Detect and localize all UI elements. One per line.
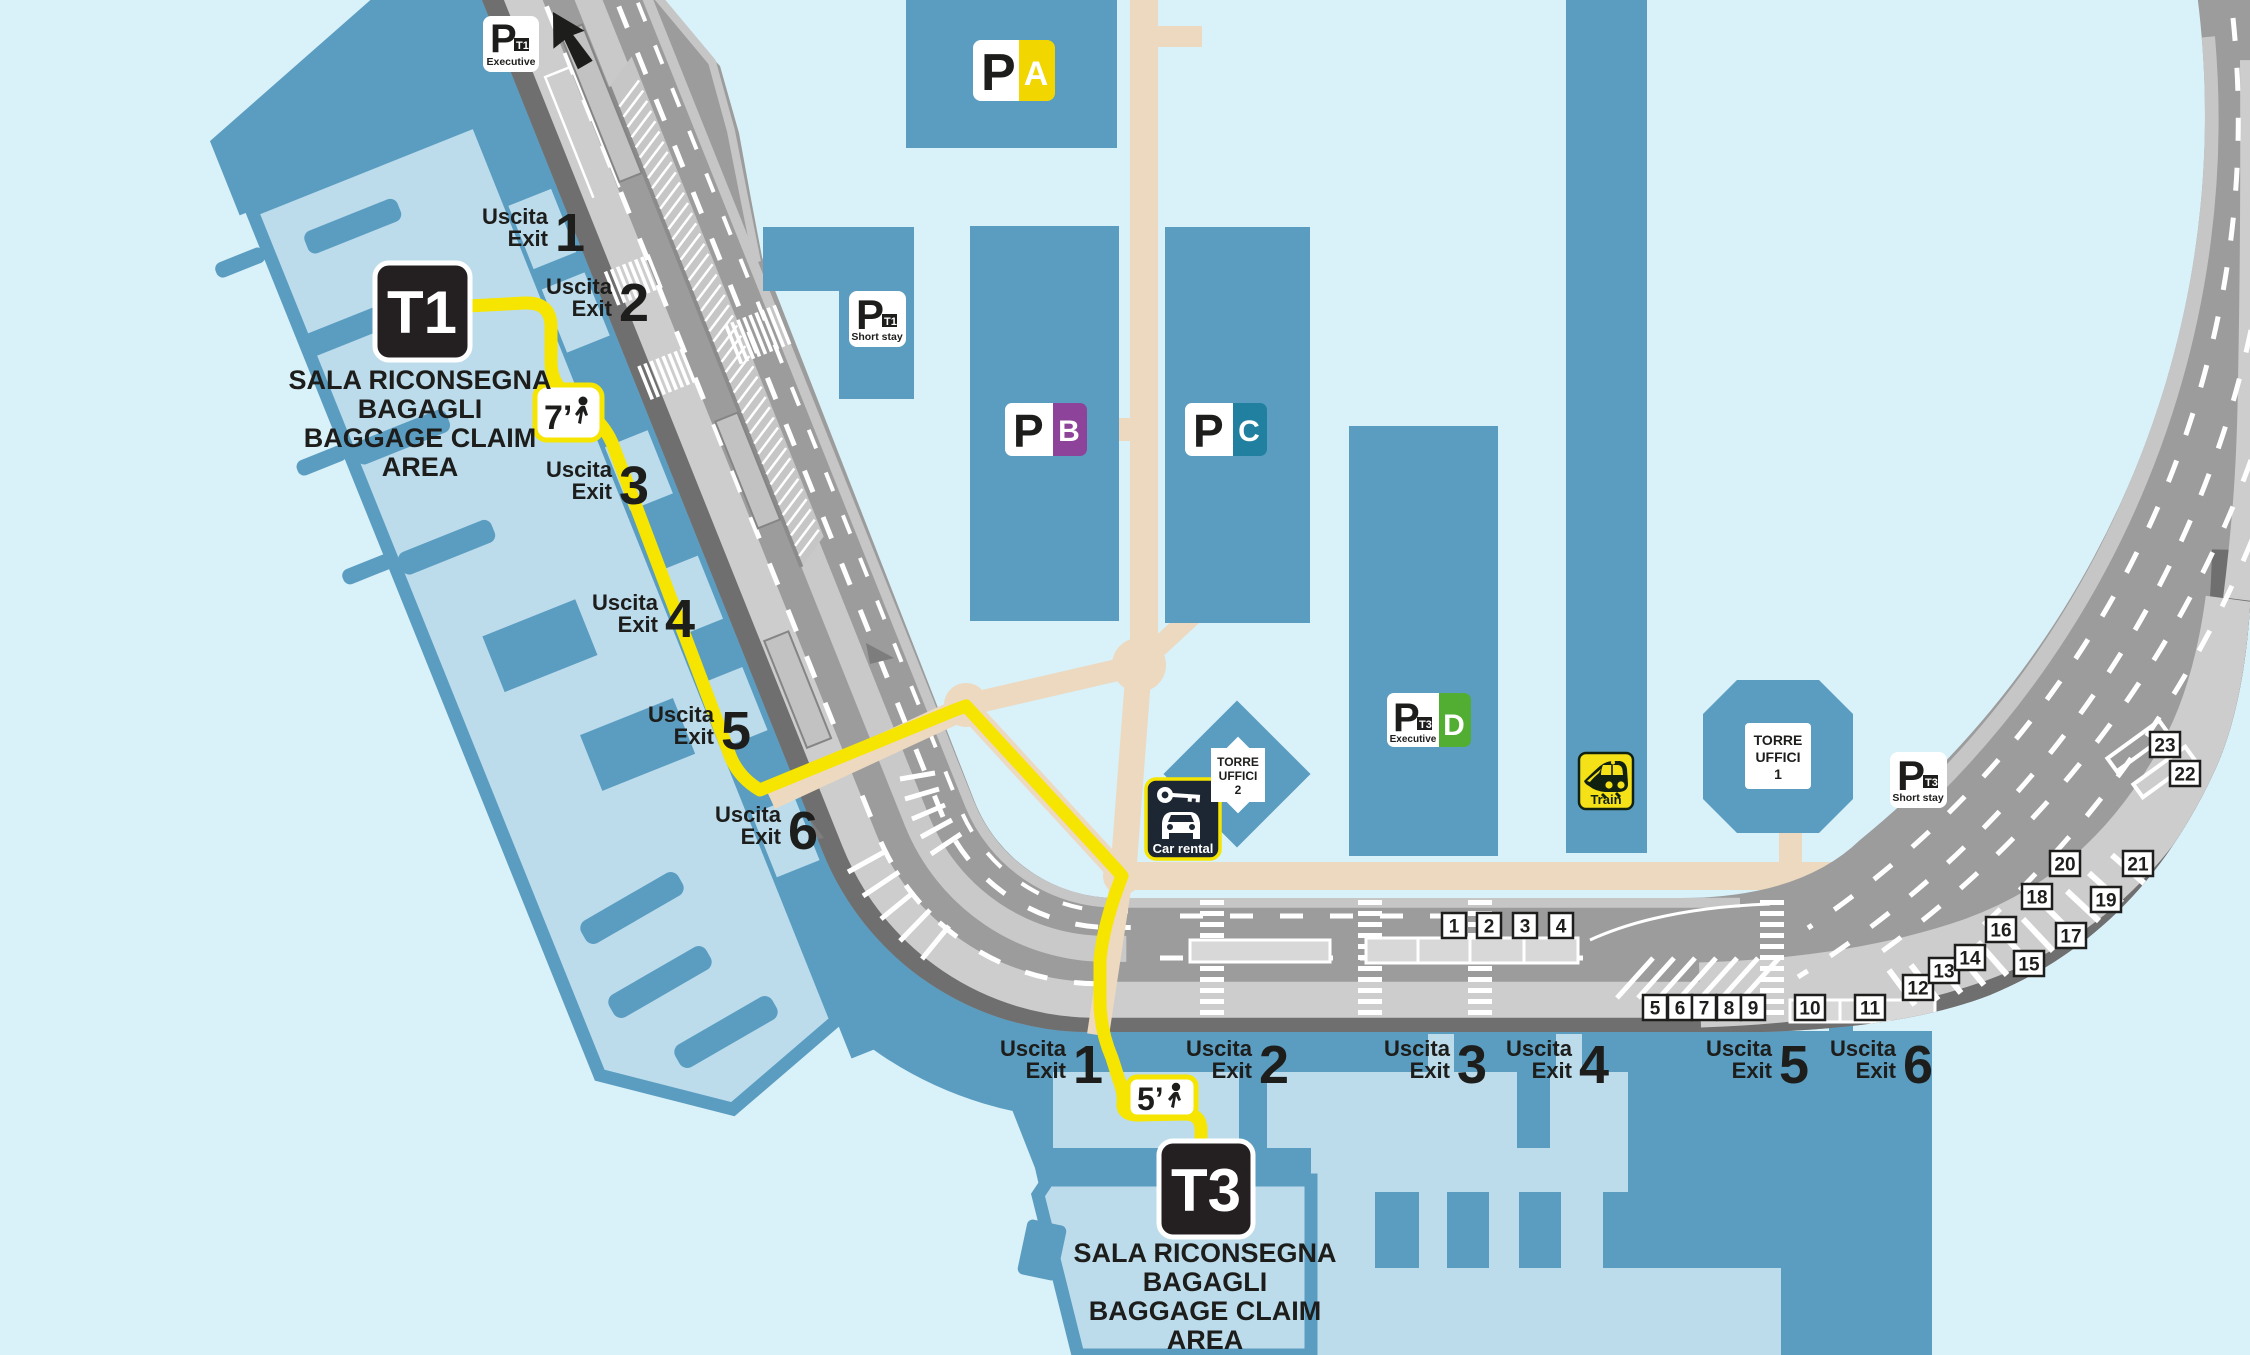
- svg-text:Exit: Exit: [741, 824, 782, 849]
- svg-text:22: 22: [2174, 765, 2195, 786]
- svg-text:6: 6: [788, 801, 818, 861]
- svg-text:7: 7: [1699, 999, 1710, 1020]
- svg-text:2: 2: [1259, 1035, 1289, 1095]
- svg-text:P: P: [490, 17, 517, 61]
- svg-text:SALA RICONSEGNA: SALA RICONSEGNA: [288, 365, 551, 395]
- svg-text:A: A: [1024, 55, 1049, 93]
- svg-text:BAGAGLI: BAGAGLI: [1143, 1267, 1268, 1297]
- svg-text:T1: T1: [516, 40, 529, 52]
- svg-text:5: 5: [721, 701, 751, 761]
- svg-text:7’: 7’: [544, 399, 572, 437]
- svg-text:BAGGAGE CLAIM: BAGGAGE CLAIM: [304, 423, 537, 453]
- svg-text:1: 1: [555, 203, 585, 263]
- svg-text:Exit: Exit: [1732, 1058, 1773, 1083]
- svg-text:Exit: Exit: [674, 724, 715, 749]
- svg-text:Train: Train: [1590, 792, 1621, 807]
- svg-text:TORRE: TORRE: [1754, 732, 1803, 748]
- svg-text:Executive: Executive: [486, 56, 535, 68]
- svg-text:D: D: [1443, 709, 1465, 742]
- svg-text:BAGAGLI: BAGAGLI: [358, 394, 483, 424]
- svg-text:Car rental: Car rental: [1153, 841, 1214, 856]
- svg-text:BAGGAGE CLAIM: BAGGAGE CLAIM: [1089, 1296, 1322, 1326]
- svg-text:Exit: Exit: [618, 612, 659, 637]
- svg-text:5: 5: [1779, 1035, 1809, 1095]
- svg-text:3: 3: [1520, 917, 1531, 938]
- svg-text:P: P: [1013, 405, 1044, 457]
- svg-text:2: 2: [619, 273, 649, 333]
- svg-text:3: 3: [619, 456, 649, 516]
- svg-text:4: 4: [665, 589, 695, 649]
- svg-text:Exit: Exit: [1532, 1058, 1573, 1083]
- svg-text:5: 5: [1650, 999, 1661, 1020]
- svg-text:T3: T3: [1171, 1157, 1241, 1224]
- svg-text:T1: T1: [387, 279, 457, 346]
- svg-text:T1: T1: [884, 316, 897, 328]
- svg-text:9: 9: [1748, 999, 1759, 1020]
- svg-text:21: 21: [2127, 855, 2149, 876]
- svg-text:Short stay: Short stay: [1892, 792, 1944, 804]
- svg-text:1: 1: [1073, 1035, 1103, 1095]
- svg-text:Exit: Exit: [1026, 1058, 1067, 1083]
- svg-text:AREA: AREA: [1167, 1325, 1244, 1355]
- svg-text:T3: T3: [1925, 777, 1938, 789]
- svg-text:Exit: Exit: [1212, 1058, 1253, 1083]
- svg-text:Exit: Exit: [1856, 1058, 1897, 1083]
- svg-text:4: 4: [1556, 917, 1567, 938]
- svg-text:UFFICI: UFFICI: [1219, 769, 1258, 783]
- svg-text:C: C: [1238, 415, 1260, 448]
- svg-text:P: P: [981, 44, 1016, 102]
- svg-text:Short stay: Short stay: [851, 331, 903, 343]
- svg-text:2: 2: [1484, 917, 1495, 938]
- svg-text:AREA: AREA: [382, 452, 459, 482]
- svg-text:3: 3: [1457, 1035, 1487, 1095]
- svg-text:Exit: Exit: [572, 296, 613, 321]
- svg-text:18: 18: [2026, 888, 2047, 909]
- svg-text:TORRE: TORRE: [1217, 755, 1259, 769]
- svg-text:14: 14: [1959, 949, 1981, 970]
- svg-text:20: 20: [2054, 855, 2075, 876]
- svg-text:P: P: [1193, 405, 1224, 457]
- svg-text:8: 8: [1724, 999, 1735, 1020]
- svg-text:SALA RICONSEGNA: SALA RICONSEGNA: [1073, 1238, 1336, 1268]
- svg-text:Executive: Executive: [1390, 734, 1437, 745]
- svg-text:Exit: Exit: [572, 479, 613, 504]
- svg-text:15: 15: [2018, 955, 2040, 976]
- svg-text:B: B: [1058, 415, 1080, 448]
- svg-text:6: 6: [1675, 999, 1686, 1020]
- svg-text:1: 1: [1774, 766, 1782, 782]
- svg-text:16: 16: [1990, 921, 2011, 942]
- svg-text:12: 12: [1907, 979, 1928, 1000]
- svg-text:1: 1: [1449, 917, 1460, 938]
- svg-text:T3: T3: [1419, 719, 1432, 731]
- svg-text:5’: 5’: [1137, 1081, 1164, 1117]
- svg-text:13: 13: [1933, 962, 1954, 983]
- svg-text:4: 4: [1579, 1035, 1609, 1095]
- svg-text:Exit: Exit: [1410, 1058, 1451, 1083]
- svg-text:2: 2: [1235, 783, 1242, 797]
- svg-text:11: 11: [1860, 999, 1881, 1020]
- svg-text:Exit: Exit: [508, 226, 549, 251]
- svg-text:10: 10: [1799, 999, 1820, 1020]
- svg-text:6: 6: [1903, 1035, 1933, 1095]
- svg-text:23: 23: [2154, 736, 2175, 757]
- svg-text:19: 19: [2095, 891, 2116, 912]
- svg-text:UFFICI: UFFICI: [1755, 749, 1800, 765]
- svg-text:17: 17: [2060, 927, 2081, 948]
